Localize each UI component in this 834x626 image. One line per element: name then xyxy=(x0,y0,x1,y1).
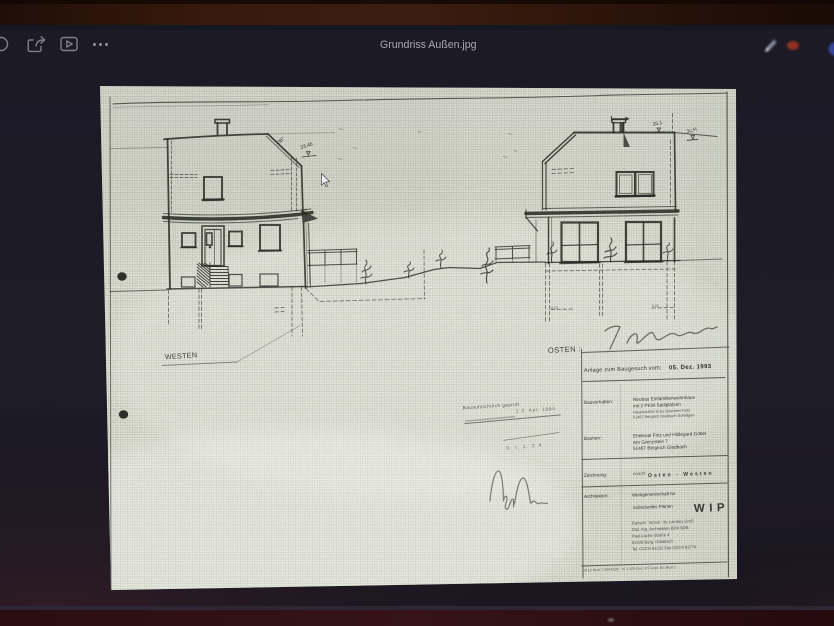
svg-text:Bauvorhaben:: Bauvorhaben: xyxy=(584,399,613,405)
svg-text:5,00: 5,00 xyxy=(551,306,558,310)
svg-text:WIP: WIP xyxy=(694,502,730,515)
svg-text:Zeichnung:: Zeichnung: xyxy=(584,472,607,478)
svg-text:Ansicht: Ansicht xyxy=(633,472,647,476)
svg-text:Grundriss Außen.jpg: Grundriss Außen.jpg xyxy=(380,39,477,51)
svg-text:OSTEN :: OSTEN : xyxy=(548,344,582,355)
svg-text:Architekten:: Architekten: xyxy=(584,493,609,499)
svg-text:5,00: 5,00 xyxy=(652,304,659,308)
svg-text:Bauherr:: Bauherr: xyxy=(584,435,602,441)
